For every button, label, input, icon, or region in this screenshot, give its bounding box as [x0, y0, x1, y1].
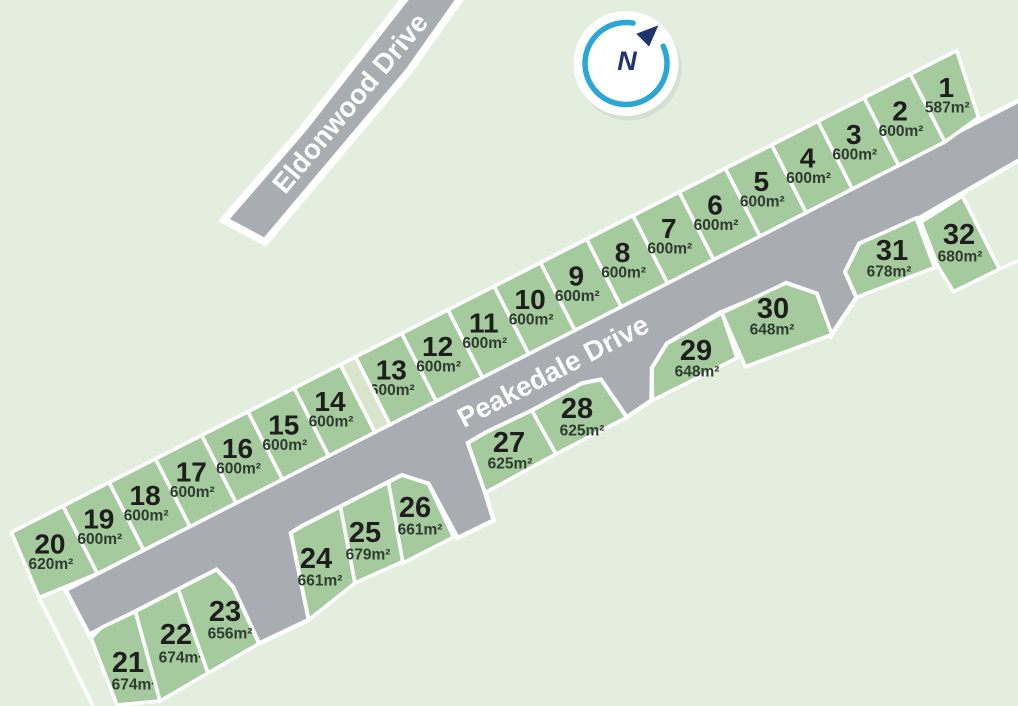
- svg-text:29: 29: [680, 335, 712, 367]
- svg-text:625m²: 625m²: [560, 423, 605, 440]
- svg-text:2: 2: [892, 95, 908, 126]
- svg-text:13: 13: [376, 355, 407, 386]
- svg-text:3: 3: [846, 119, 862, 150]
- svg-text:8: 8: [615, 237, 631, 268]
- svg-text:587m²: 587m²: [925, 99, 970, 116]
- svg-text:661m²: 661m²: [398, 522, 443, 539]
- svg-text:22: 22: [160, 619, 192, 651]
- svg-text:600m²: 600m²: [216, 461, 261, 478]
- svg-text:648m²: 648m²: [750, 322, 795, 339]
- svg-text:600m²: 600m²: [740, 194, 785, 211]
- svg-text:674m²: 674m²: [159, 650, 204, 667]
- svg-text:4: 4: [800, 143, 816, 174]
- svg-text:30: 30: [757, 293, 789, 325]
- svg-text:625m²: 625m²: [488, 456, 533, 473]
- svg-text:16: 16: [222, 433, 253, 464]
- svg-text:19: 19: [83, 504, 114, 535]
- svg-text:600m²: 600m²: [509, 311, 554, 328]
- svg-text:600m²: 600m²: [124, 508, 169, 525]
- svg-text:9: 9: [569, 260, 585, 291]
- svg-text:600m²: 600m²: [832, 147, 877, 164]
- svg-text:600m²: 600m²: [786, 170, 831, 187]
- svg-text:20: 20: [34, 529, 65, 560]
- svg-text:1: 1: [939, 72, 955, 103]
- svg-text:600m²: 600m²: [879, 123, 924, 140]
- svg-text:32: 32: [943, 219, 975, 251]
- svg-text:10: 10: [515, 284, 546, 315]
- svg-text:17: 17: [176, 457, 207, 488]
- svg-text:26: 26: [399, 492, 431, 524]
- svg-text:31: 31: [876, 235, 908, 267]
- svg-text:620m²: 620m²: [28, 556, 73, 573]
- svg-text:600m²: 600m²: [462, 335, 507, 352]
- svg-text:661m²: 661m²: [298, 573, 343, 590]
- svg-text:18: 18: [130, 480, 161, 511]
- svg-text:25: 25: [349, 517, 381, 549]
- svg-text:5: 5: [754, 166, 770, 197]
- svg-text:679m²: 679m²: [346, 547, 391, 564]
- svg-text:23: 23: [209, 596, 241, 628]
- svg-text:7: 7: [661, 213, 677, 244]
- svg-text:600m²: 600m²: [309, 413, 354, 430]
- svg-text:24: 24: [300, 543, 332, 575]
- svg-text:14: 14: [314, 386, 346, 417]
- svg-text:656m²: 656m²: [208, 626, 253, 643]
- svg-text:678m²: 678m²: [867, 264, 912, 281]
- svg-text:600m²: 600m²: [416, 359, 461, 376]
- svg-text:21: 21: [112, 647, 144, 679]
- svg-text:600m²: 600m²: [77, 531, 122, 548]
- svg-text:674m²: 674m²: [112, 677, 157, 694]
- svg-text:12: 12: [422, 331, 453, 362]
- svg-text:600m²: 600m²: [647, 241, 692, 258]
- svg-text:N: N: [617, 46, 637, 76]
- svg-text:6: 6: [707, 190, 723, 221]
- svg-text:600m²: 600m²: [170, 484, 215, 501]
- svg-text:600m²: 600m²: [262, 437, 307, 454]
- svg-text:600m²: 600m²: [555, 288, 600, 305]
- svg-text:27: 27: [493, 427, 525, 459]
- svg-text:600m²: 600m²: [694, 217, 739, 234]
- svg-text:28: 28: [561, 393, 593, 425]
- svg-text:648m²: 648m²: [675, 364, 720, 381]
- svg-text:11: 11: [469, 308, 499, 339]
- svg-text:15: 15: [268, 409, 299, 440]
- svg-text:600m²: 600m²: [601, 264, 646, 281]
- svg-text:680m²: 680m²: [938, 249, 983, 266]
